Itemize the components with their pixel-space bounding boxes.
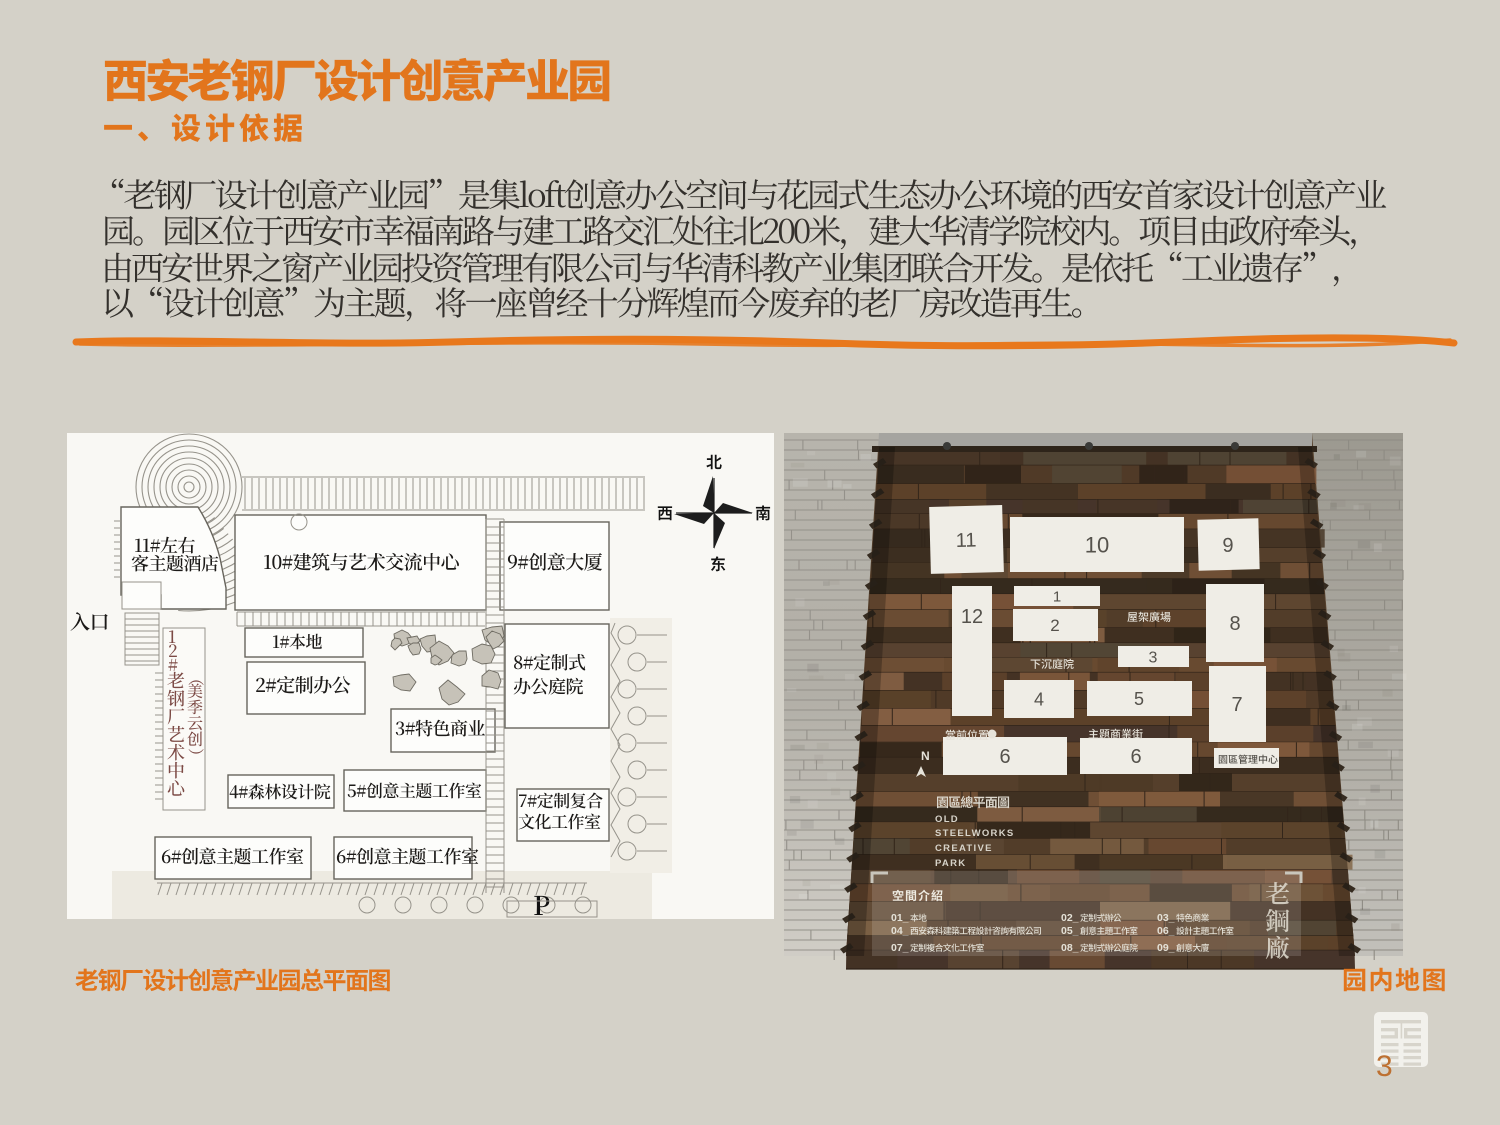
svg-text:1: 1 [1053, 588, 1061, 605]
svg-text:11: 11 [955, 529, 976, 552]
svg-text:5: 5 [1134, 689, 1144, 709]
svg-text:06_: 06_ [1157, 925, 1175, 937]
svg-text:PARK: PARK [935, 858, 966, 869]
svg-text:07_: 07_ [891, 942, 909, 954]
svg-text:04_: 04_ [891, 925, 909, 937]
svg-text:CREATIVE: CREATIVE [935, 843, 993, 854]
svg-text:9: 9 [1222, 535, 1234, 557]
svg-text:3: 3 [1376, 1050, 1393, 1083]
svg-text:01_: 01_ [891, 912, 909, 924]
svg-text:03_: 03_ [1157, 912, 1175, 924]
svg-text:8: 8 [1229, 613, 1240, 635]
svg-text:6: 6 [999, 746, 1010, 768]
svg-text:12: 12 [961, 606, 983, 628]
svg-text:09_: 09_ [1157, 942, 1175, 954]
svg-text:N: N [921, 749, 930, 763]
svg-text:2: 2 [1050, 616, 1059, 635]
svg-text:7: 7 [1231, 694, 1242, 716]
svg-text:10: 10 [1085, 532, 1109, 557]
svg-text:02_: 02_ [1061, 912, 1079, 924]
svg-text:3: 3 [1149, 649, 1158, 666]
svg-text:STEELWORKS: STEELWORKS [935, 828, 1015, 839]
svg-text:6: 6 [1130, 746, 1141, 768]
svg-text:08_: 08_ [1061, 942, 1079, 954]
svg-text:05_: 05_ [1061, 925, 1079, 937]
svg-text:4: 4 [1034, 690, 1044, 710]
svg-text:OLD: OLD [935, 814, 959, 825]
